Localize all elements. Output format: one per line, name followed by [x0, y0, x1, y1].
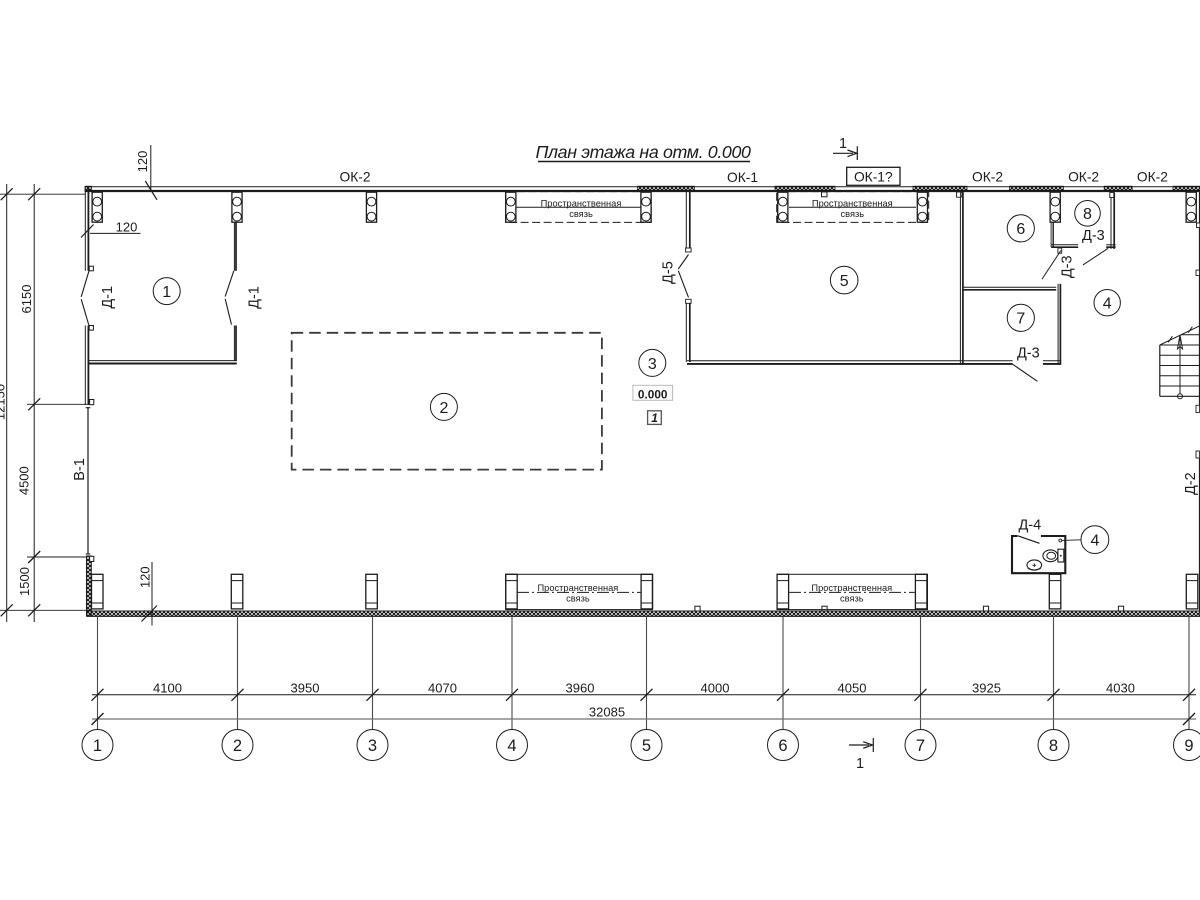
svg-text:4: 4 [507, 737, 516, 755]
svg-text:0.000: 0.000 [638, 387, 668, 401]
svg-text:4030: 4030 [1106, 680, 1135, 695]
svg-text:ОК-2: ОК-2 [972, 170, 1003, 185]
svg-text:4: 4 [1090, 533, 1099, 550]
svg-text:Д-3: Д-3 [1060, 255, 1076, 278]
svg-text:5: 5 [642, 737, 651, 755]
svg-text:Д-1: Д-1 [100, 286, 116, 309]
svg-text:4070: 4070 [428, 680, 457, 695]
svg-text:9: 9 [1184, 737, 1193, 755]
svg-text:6: 6 [1016, 221, 1025, 238]
svg-text:4500: 4500 [17, 466, 32, 495]
svg-text:ОК-2: ОК-2 [1137, 170, 1168, 185]
svg-text:связь: связь [566, 593, 590, 603]
svg-text:Д-1: Д-1 [247, 286, 263, 309]
svg-text:Пространственная: Пространственная [811, 583, 892, 593]
svg-text:3: 3 [648, 356, 657, 373]
svg-text:120: 120 [138, 566, 153, 588]
svg-text:5: 5 [840, 273, 849, 290]
svg-text:Д-2: Д-2 [1183, 472, 1199, 495]
svg-text:ОК-1: ОК-1 [727, 170, 758, 185]
svg-text:В-1: В-1 [72, 458, 88, 481]
svg-text:1: 1 [162, 284, 171, 301]
svg-text:2: 2 [439, 400, 448, 417]
svg-text:3925: 3925 [972, 680, 1001, 695]
svg-text:1: 1 [856, 756, 864, 772]
svg-text:Д-4: Д-4 [1019, 518, 1042, 534]
svg-text:Д-5: Д-5 [661, 261, 677, 284]
svg-text:12150: 12150 [0, 384, 8, 420]
svg-text:ОК-2: ОК-2 [1068, 170, 1099, 185]
svg-text:32085: 32085 [589, 705, 625, 720]
svg-text:7: 7 [1016, 311, 1025, 328]
svg-text:3960: 3960 [566, 680, 595, 695]
svg-text:1: 1 [651, 411, 658, 425]
svg-text:Пространственная: Пространственная [541, 199, 622, 209]
svg-text:6150: 6150 [19, 285, 34, 314]
svg-text:4100: 4100 [153, 680, 182, 695]
svg-text:4000: 4000 [701, 680, 730, 695]
svg-text:План этажа на отм. 0.000: План этажа на отм. 0.000 [535, 142, 751, 162]
svg-text:3950: 3950 [291, 680, 320, 695]
svg-text:Д-3: Д-3 [1082, 228, 1105, 244]
svg-text:7: 7 [916, 737, 925, 755]
svg-text:3: 3 [368, 737, 377, 755]
svg-text:Пространственная: Пространственная [538, 583, 619, 593]
svg-text:4050: 4050 [838, 680, 867, 695]
svg-text:связь: связь [840, 209, 864, 219]
svg-text:1: 1 [839, 136, 847, 152]
svg-text:2: 2 [233, 737, 242, 755]
svg-text:6: 6 [778, 737, 787, 755]
svg-text:4: 4 [1103, 296, 1112, 313]
svg-text:ОК-1?: ОК-1? [854, 170, 893, 185]
svg-text:120: 120 [116, 220, 138, 235]
svg-text:8: 8 [1049, 737, 1058, 755]
svg-text:120: 120 [135, 151, 150, 173]
svg-text:связь: связь [840, 593, 864, 603]
svg-text:Д-3: Д-3 [1017, 346, 1040, 362]
svg-text:ОК-2: ОК-2 [339, 170, 370, 185]
svg-text:1: 1 [93, 737, 102, 755]
svg-text:1500: 1500 [17, 567, 32, 596]
svg-text:связь: связь [569, 209, 593, 219]
svg-text:8: 8 [1083, 206, 1092, 223]
svg-text:Пространственная: Пространственная [812, 199, 893, 209]
